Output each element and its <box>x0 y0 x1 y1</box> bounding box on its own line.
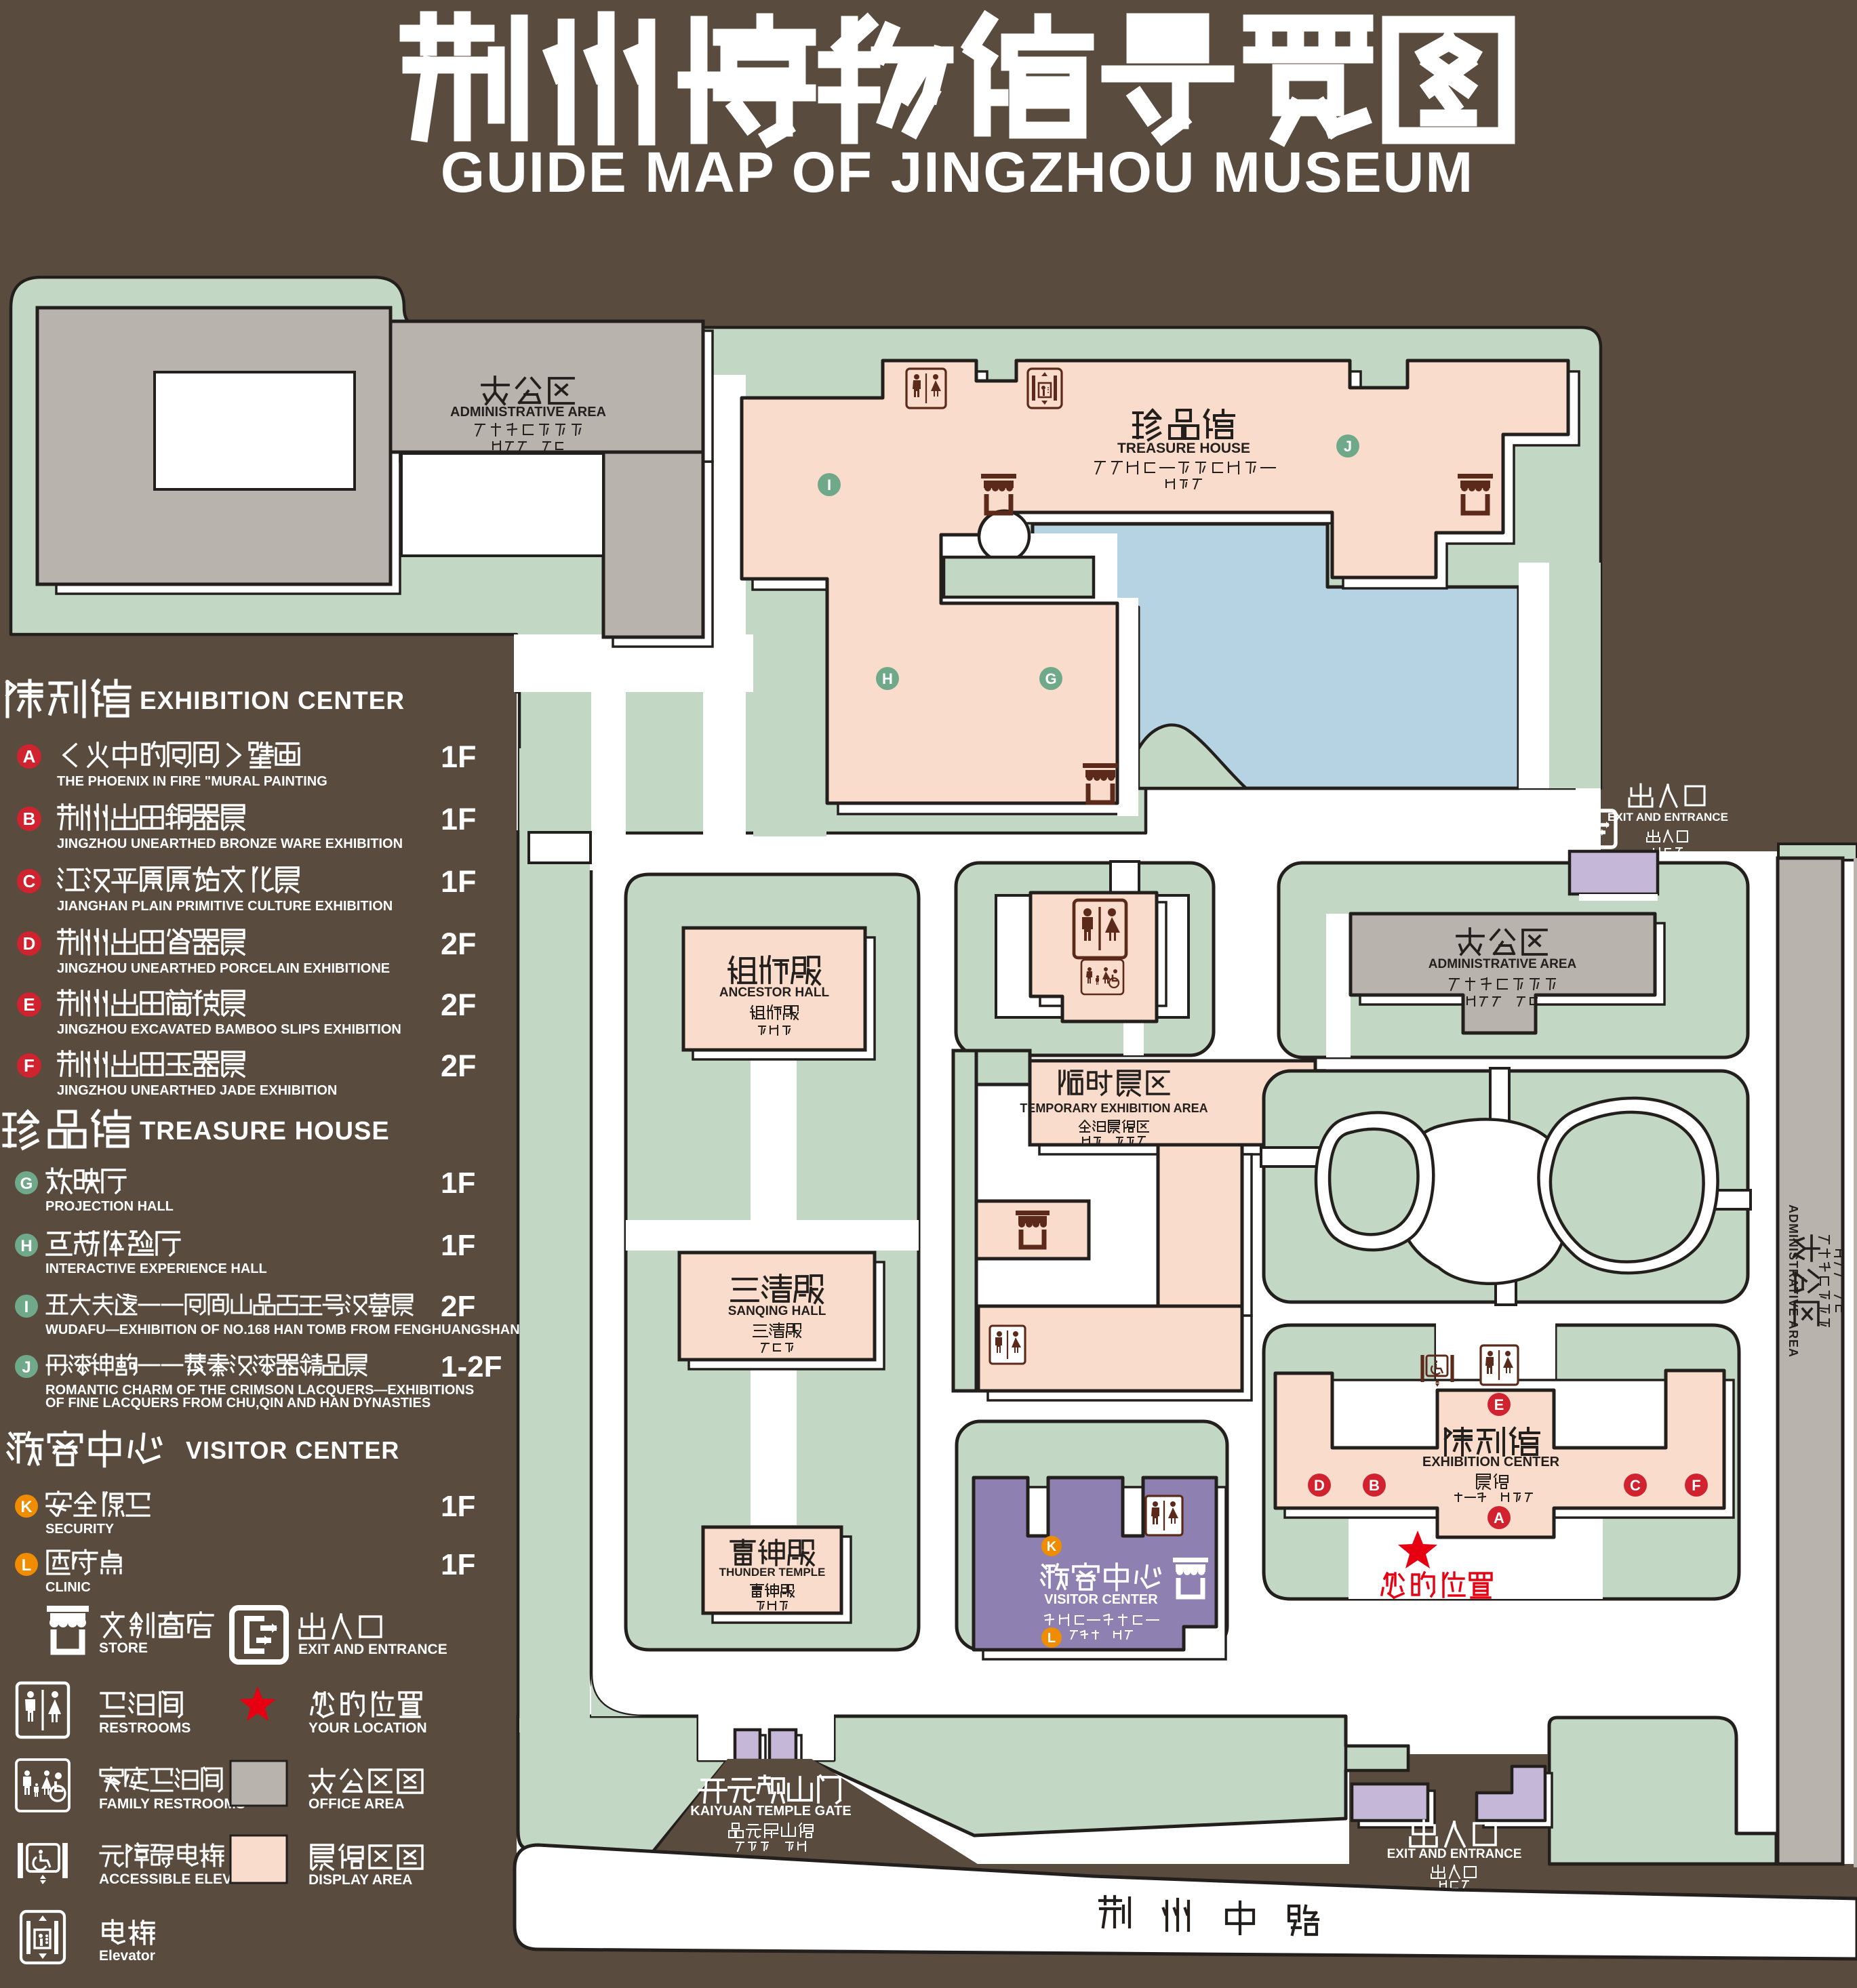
svg-text:F: F <box>1692 1477 1700 1494</box>
svg-text:K: K <box>20 1498 33 1516</box>
svg-text:I: I <box>24 1298 29 1316</box>
svg-text:1F: 1F <box>441 864 477 899</box>
svg-text:THE PHOENIX IN FIRE "MURAL PAI: THE PHOENIX IN FIRE "MURAL PAINTING <box>57 774 327 789</box>
svg-text:2F: 2F <box>441 927 477 961</box>
svg-text:1F: 1F <box>441 1490 475 1523</box>
svg-text:TREASURE HOUSE: TREASURE HOUSE <box>140 1117 390 1145</box>
svg-text:EXIT AND ENTRANCE: EXIT AND ENTRANCE <box>1387 1847 1522 1861</box>
svg-text:D: D <box>23 933 36 954</box>
svg-text:JINGZHOU UNEARTHED BRONZE WARE: JINGZHOU UNEARTHED BRONZE WARE EXHIBITIO… <box>57 836 403 851</box>
svg-text:YOUR LOCATION: YOUR LOCATION <box>308 1720 427 1736</box>
svg-text:J: J <box>22 1358 31 1377</box>
svg-text:SANQING HALL: SANQING HALL <box>728 1304 826 1318</box>
svg-text:CLINIC: CLINIC <box>45 1580 91 1595</box>
svg-text:TEMPORARY EXHIBITION AREA: TEMPORARY EXHIBITION AREA <box>1020 1101 1207 1115</box>
svg-text:2F: 2F <box>441 988 477 1022</box>
svg-text:EXIT AND ENTRANCE: EXIT AND ENTRANCE <box>298 1642 447 1657</box>
svg-text:G: G <box>20 1175 33 1193</box>
svg-text:E: E <box>1494 1396 1504 1413</box>
svg-text:JIANGHAN PLAIN PRIMITIVE CULTU: JIANGHAN PLAIN PRIMITIVE CULTURE EXHIBIT… <box>57 899 393 914</box>
svg-text:OF FINE LACQUERS FROM CHU,QIN: OF FINE LACQUERS FROM CHU,QIN AND HAN DY… <box>45 1396 431 1411</box>
svg-text:ADMINISTRATIVE AREA: ADMINISTRATIVE AREA <box>450 405 606 420</box>
svg-text:1F: 1F <box>441 802 477 836</box>
svg-text:A: A <box>23 746 36 767</box>
svg-text:INTERACTIVE EXPERIENCE HALL: INTERACTIVE EXPERIENCE HALL <box>45 1261 267 1276</box>
svg-text:E: E <box>23 994 35 1015</box>
svg-text:Elevator: Elevator <box>99 1948 155 1964</box>
svg-text:G: G <box>1045 670 1056 687</box>
svg-text:GUIDE MAP OF JINGZHOU MUSEUM: GUIDE MAP OF JINGZHOU MUSEUM <box>441 140 1475 204</box>
svg-text:L: L <box>1047 1631 1056 1646</box>
svg-text:EXHIBITION CENTER: EXHIBITION CENTER <box>1422 1455 1560 1469</box>
svg-text:TREASURE HOUSE: TREASURE HOUSE <box>1117 441 1250 456</box>
svg-text:JINGZHOU UNEARTHED JADE EXHIBI: JINGZHOU UNEARTHED JADE EXHIBITION <box>57 1083 337 1098</box>
svg-text:A: A <box>1494 1509 1504 1526</box>
svg-text:EXHIBITION CENTER: EXHIBITION CENTER <box>140 687 405 714</box>
svg-text:STORE: STORE <box>99 1640 148 1656</box>
svg-text:FAMILY RESTROOMS: FAMILY RESTROOMS <box>99 1796 245 1812</box>
svg-text:C: C <box>1630 1477 1641 1494</box>
svg-text:H: H <box>882 670 893 687</box>
svg-text:RESTROOMS: RESTROOMS <box>99 1720 191 1736</box>
svg-text:1F: 1F <box>441 1229 475 1262</box>
svg-text:PROJECTION HALL: PROJECTION HALL <box>45 1199 174 1214</box>
svg-text:1F: 1F <box>441 1167 475 1200</box>
svg-text:K: K <box>1047 1539 1057 1554</box>
svg-text:C: C <box>23 871 36 891</box>
svg-text:H: H <box>20 1237 32 1255</box>
svg-text:ADMINISTRATIVE AREA: ADMINISTRATIVE AREA <box>1429 957 1577 971</box>
svg-text:ANCESTOR HALL: ANCESTOR HALL <box>719 986 830 1000</box>
svg-text:JINGZHOU EXCAVATED BAMBOO SLIP: JINGZHOU EXCAVATED BAMBOO SLIPS EXHIBITI… <box>57 1022 401 1037</box>
svg-text:I: I <box>827 476 831 493</box>
svg-text:WUDAFU—EXHIBITION OF NO.168 HA: WUDAFU—EXHIBITION OF NO.168 HAN TOMB FRO… <box>45 1322 520 1337</box>
svg-text:SECURITY: SECURITY <box>45 1522 115 1537</box>
svg-text:D: D <box>1314 1477 1325 1494</box>
svg-text:B: B <box>1369 1477 1380 1494</box>
svg-text:J: J <box>1344 438 1352 455</box>
svg-text:JINGZHOU UNEARTHED PORCELAIN E: JINGZHOU UNEARTHED PORCELAIN EXHIBITIONE <box>57 961 390 976</box>
svg-text:1F: 1F <box>441 1548 475 1581</box>
svg-text:VISITOR CENTER: VISITOR CENTER <box>1044 1592 1158 1607</box>
svg-text:THUNDER TEMPLE: THUNDER TEMPLE <box>719 1566 826 1579</box>
svg-text:F: F <box>24 1055 35 1076</box>
svg-text:2F: 2F <box>441 1049 477 1083</box>
svg-text:1F: 1F <box>441 739 477 774</box>
svg-text:VISITOR CENTER: VISITOR CENTER <box>186 1436 399 1464</box>
svg-text:DISPLAY AREA: DISPLAY AREA <box>308 1872 412 1888</box>
svg-text:OFFICE AREA: OFFICE AREA <box>308 1796 405 1812</box>
svg-text:1-2F: 1-2F <box>441 1350 502 1383</box>
svg-text:B: B <box>23 809 36 829</box>
svg-text:EXIT AND ENTRANCE: EXIT AND ENTRANCE <box>1608 811 1728 824</box>
svg-text:L: L <box>22 1556 32 1575</box>
svg-text:KAIYUAN TEMPLE GATE: KAIYUAN TEMPLE GATE <box>690 1804 851 1819</box>
svg-text:ADMINISTRATIVE AREA: ADMINISTRATIVE AREA <box>1786 1204 1800 1358</box>
svg-text:2F: 2F <box>441 1290 475 1323</box>
